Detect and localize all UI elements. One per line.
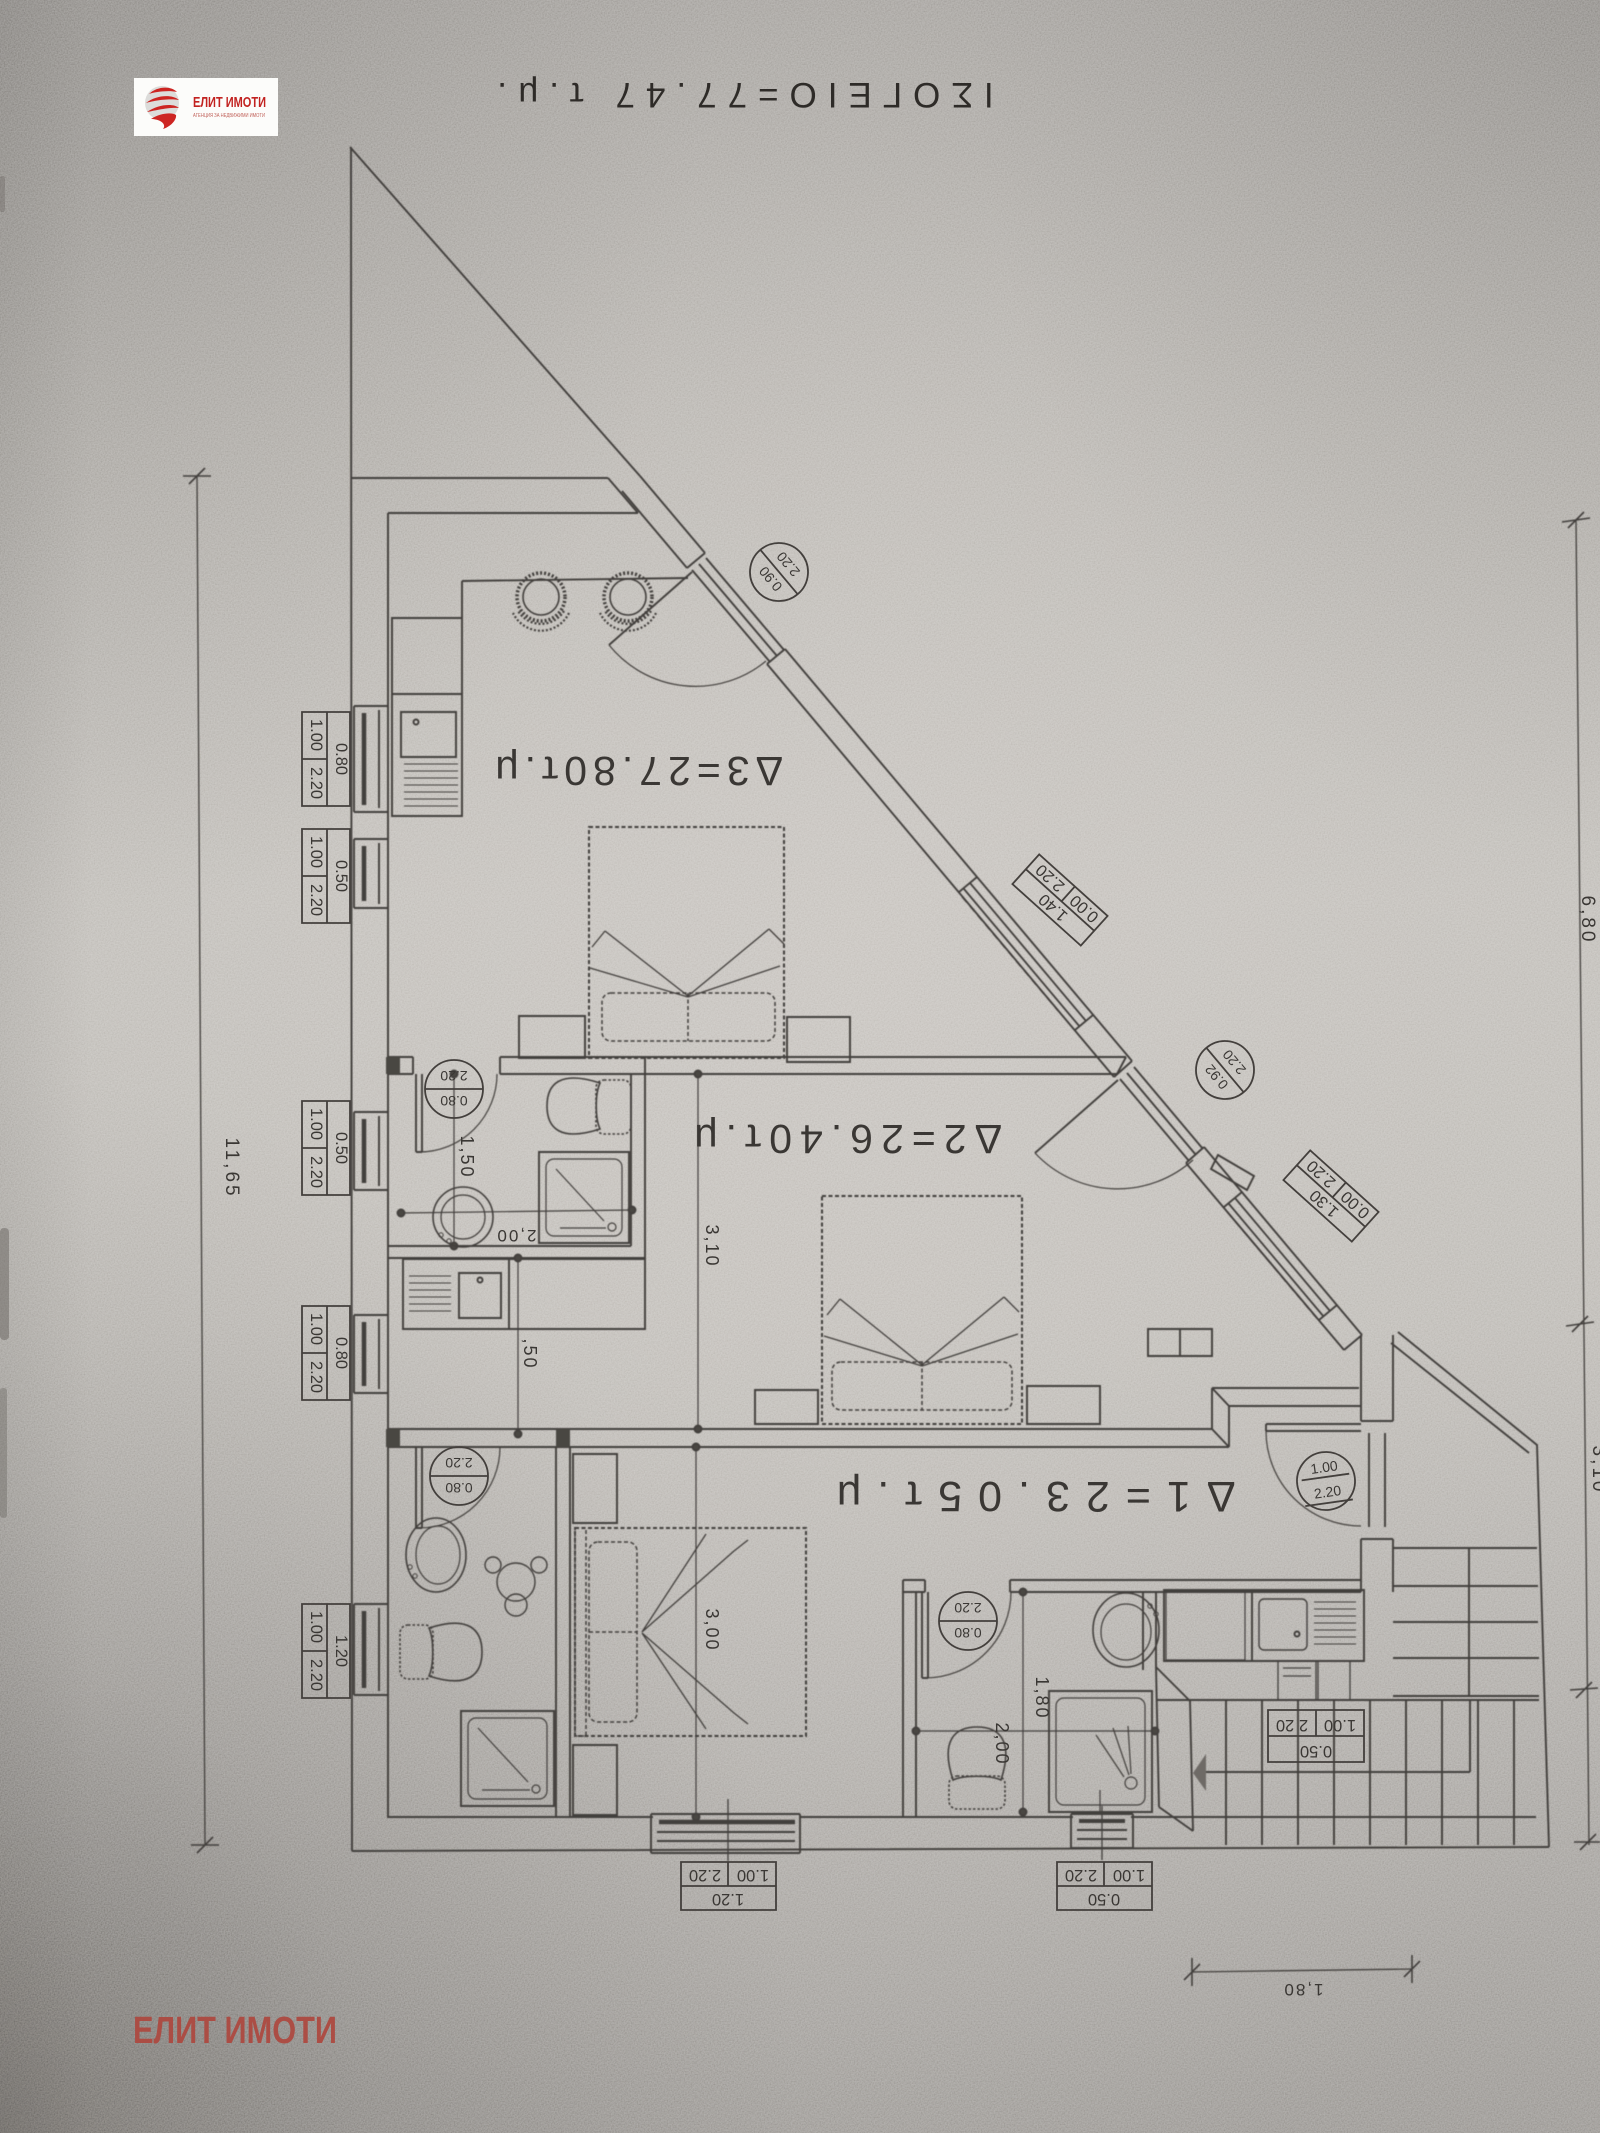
svg-text:11,65: 11,65 [221,1137,242,1198]
svg-text:1,50: 1,50 [457,1135,477,1178]
svg-text:0.80: 0.80 [445,1480,472,1496]
svg-text:АГЕНЦИЯ ЗА НЕДВИЖИМИ ИМОТИ: АГЕНЦИЯ ЗА НЕДВИЖИМИ ИМОТИ [193,113,265,119]
svg-text:1.00: 1.00 [1113,1866,1145,1884]
svg-text:6,80: 6,80 [1577,896,1598,945]
svg-text:ΙΣΟΓΕΙΟ=77.47 τ.μ.: ΙΣΟΓΕΙΟ=77.47 τ.μ. [486,75,993,114]
svg-text:1.00: 1.00 [307,1108,325,1140]
svg-text:Δ3=27.80τ.μ: Δ3=27.80τ.μ [489,748,783,794]
svg-text:0.50: 0.50 [332,1132,350,1164]
svg-text:1,80: 1,80 [1282,1980,1323,1999]
svg-text:1.20: 1.20 [332,1635,350,1667]
svg-text:1.00: 1.00 [307,719,325,751]
svg-text:1.00: 1.00 [1324,1716,1356,1734]
svg-text:ЕЛИТ ИМОТИ: ЕЛИТ ИМОТИ [193,95,266,111]
svg-text:0.50: 0.50 [1088,1890,1120,1908]
svg-text:1.00: 1.00 [307,836,325,868]
svg-text:2,00: 2,00 [495,1226,536,1245]
svg-text:2.20: 2.20 [307,1361,325,1393]
svg-text:1.00: 1.00 [307,1313,325,1345]
svg-text:3,10: 3,10 [1588,1446,1600,1495]
svg-text:Δ1=23.05τ.μ: Δ1=23.05τ.μ [820,1472,1235,1520]
svg-text:1.00: 1.00 [307,1611,325,1643]
svg-text:1,80: 1,80 [1032,1676,1052,1719]
svg-text:0.80: 0.80 [332,1337,350,1369]
svg-text:2 20: 2 20 [1276,1716,1308,1734]
svg-text:Δ2=26.40τ.μ: Δ2=26.40τ.μ [686,1116,1002,1162]
svg-text:,50: ,50 [520,1338,540,1369]
svg-text:2.20: 2.20 [954,1600,981,1616]
svg-text:0.80: 0.80 [332,743,350,775]
svg-text:2,00: 2,00 [992,1722,1012,1765]
svg-text:3,10: 3,10 [702,1224,722,1267]
svg-text:2.20: 2.20 [307,1659,325,1691]
svg-text:2.20: 2.20 [440,1068,467,1084]
svg-text:0.50: 0.50 [1300,1742,1332,1760]
svg-text:0.50: 0.50 [332,860,350,892]
svg-text:1.00: 1.00 [737,1866,769,1884]
svg-text:0.80: 0.80 [440,1093,467,1109]
svg-text:ЕЛИТ ИМОТИ: ЕЛИТ ИМОТИ [133,2010,337,2052]
svg-text:3,00: 3,00 [702,1608,722,1651]
svg-text:2.20: 2.20 [307,767,325,799]
svg-text:2.20: 2.20 [689,1866,721,1884]
svg-text:2.20: 2.20 [307,1156,325,1188]
svg-text:1.20: 1.20 [712,1890,744,1908]
svg-text:2.20: 2.20 [1065,1866,1097,1884]
svg-text:2.20: 2.20 [445,1455,472,1471]
svg-text:0.80: 0.80 [954,1625,981,1641]
svg-text:2.20: 2.20 [307,884,325,916]
